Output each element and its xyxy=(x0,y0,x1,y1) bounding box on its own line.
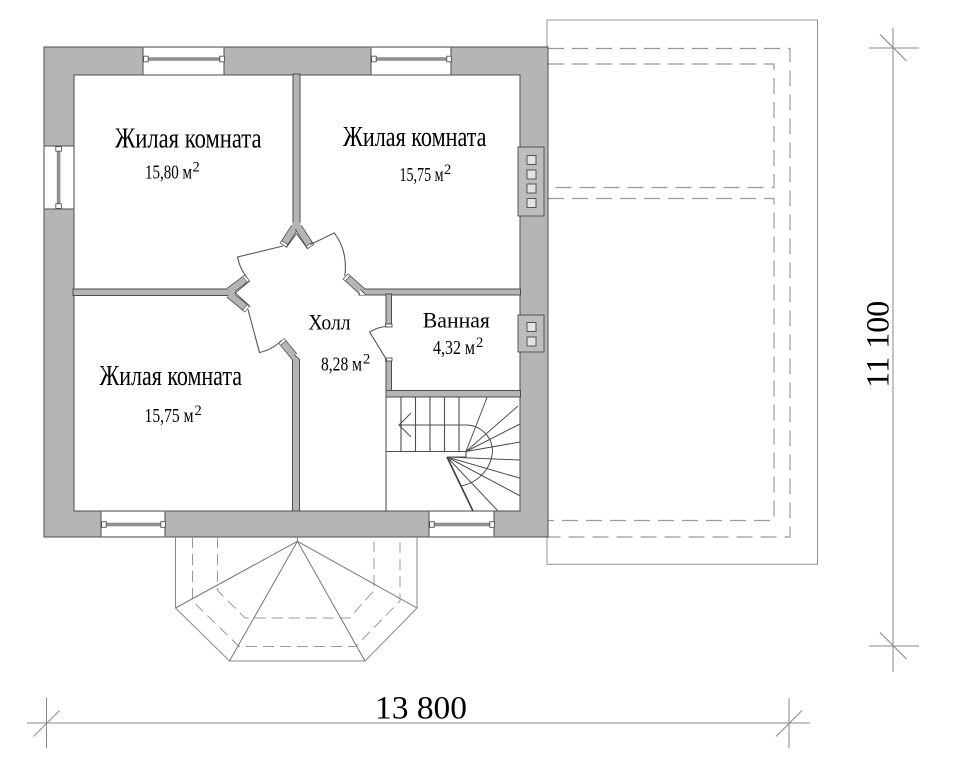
svg-text:2: 2 xyxy=(195,403,202,419)
svg-text:15,80 м: 15,80 м xyxy=(145,162,192,184)
svg-text:Жилая комната: Жилая комната xyxy=(343,122,487,153)
svg-text:13 800: 13 800 xyxy=(375,691,467,727)
svg-text:2: 2 xyxy=(444,162,451,178)
svg-text:8,28 м: 8,28 м xyxy=(321,354,362,376)
svg-text:Жилая комната: Жилая комната xyxy=(100,361,243,392)
svg-text:11 100: 11 100 xyxy=(861,301,897,388)
svg-text:15,75 м: 15,75 м xyxy=(400,164,444,186)
svg-text:15,75 м: 15,75 м xyxy=(145,405,194,427)
svg-text:Ванная: Ванная xyxy=(423,308,490,333)
svg-text:4,32 м: 4,32 м xyxy=(433,337,475,359)
svg-text:2: 2 xyxy=(363,352,370,368)
svg-text:2: 2 xyxy=(193,160,200,176)
svg-text:Жилая комната: Жилая комната xyxy=(115,123,262,154)
svg-text:Холл: Холл xyxy=(308,310,350,335)
svg-text:2: 2 xyxy=(476,335,483,351)
